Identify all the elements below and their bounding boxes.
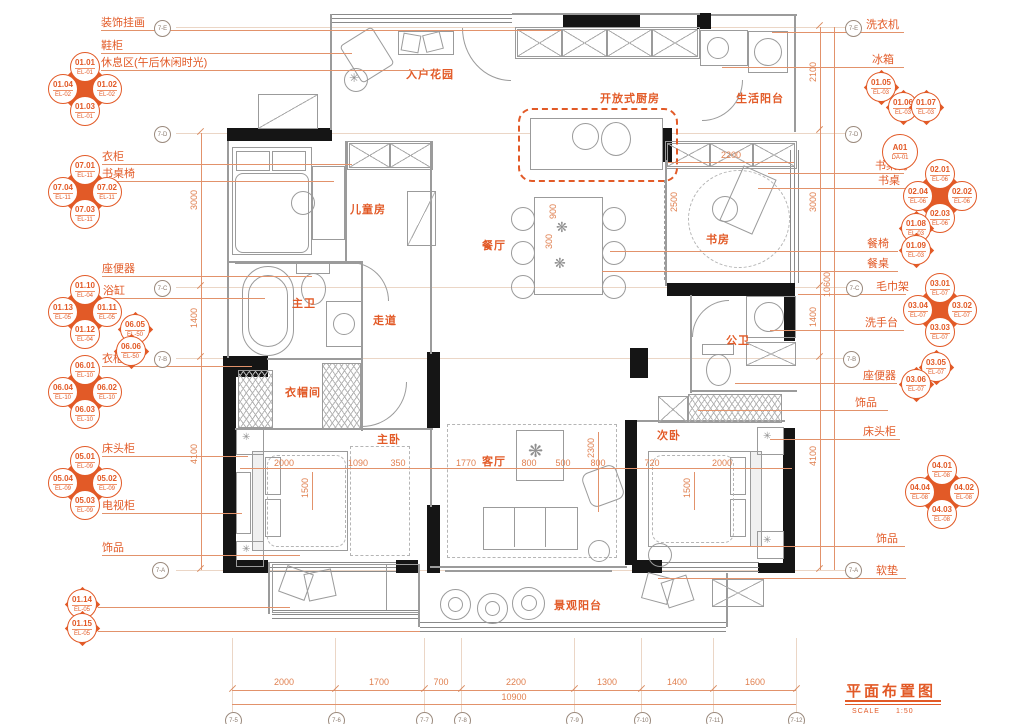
room-label-study: 书房 (706, 234, 730, 246)
annotation-towel-rack: 毛巾架 (876, 281, 909, 293)
wall-segment (625, 420, 637, 565)
annotation-nightstand-second: 床头柜 (863, 426, 896, 438)
grid-bubble: 7-12 (788, 712, 805, 724)
dining-chair (511, 241, 535, 265)
dim-dining-gap: 300 (545, 234, 554, 249)
grid-bubble: 7-D (154, 126, 171, 143)
marker-cluster-03: 03.01EL-07 03.04EL-07 03.02EL-07 03.03EL… (906, 276, 974, 344)
wardrobe-second (688, 394, 782, 423)
marker-code: 01.03 (75, 103, 95, 113)
marker-cluster-05: 05.01EL-09 05.04EL-09 05.02EL-09 05.03EL… (51, 449, 119, 517)
grid-bubble: 7-E (845, 20, 862, 37)
wall-segment (563, 13, 640, 27)
dim-bottom-6: 1600 (723, 678, 787, 687)
annotation-washbasin: 洗手台 (865, 317, 898, 329)
marker-a01: A01 DA-01 (882, 134, 918, 170)
room-label-guest-bath: 公卫 (726, 335, 750, 347)
grid-bubble: 7-9 (566, 712, 583, 724)
sofa (483, 507, 578, 550)
drawing-title: 平面布置图 (846, 680, 936, 701)
annotation-desk-study: 书桌 (878, 175, 900, 187)
annotation-washer: 洗衣机 (866, 19, 899, 31)
study-chair (712, 196, 738, 222)
grid-bubble: 7-C (154, 280, 171, 297)
wall-segment (783, 428, 795, 564)
door-arc (462, 28, 511, 81)
dim-right-1: 3000 (809, 192, 818, 212)
dim-bottom-4: 1300 (575, 678, 639, 687)
annotation-toilet-guest: 座便器 (863, 370, 896, 382)
dining-chair (602, 241, 626, 265)
dim-living-2: 500 (549, 459, 577, 468)
marker-sub: EL-01 (77, 70, 93, 76)
grid-bubble: 7-D (845, 126, 862, 143)
annotation-dining-chair: 餐椅 (867, 238, 889, 250)
dim-bottom-0: 2000 (252, 678, 316, 687)
lamp-icon: ✳ (242, 433, 250, 443)
door-arc (362, 382, 407, 427)
window-entry (330, 14, 512, 23)
shower-guest (746, 342, 796, 366)
dim-master-h: 1500 (301, 478, 310, 498)
annotation-cushion: 软垫 (876, 565, 898, 577)
wall-segment (227, 128, 332, 141)
dim-dining-w: 900 (549, 204, 558, 219)
grid-bubble: 7-A (152, 562, 169, 579)
dim-second-1: 2000 (706, 459, 738, 468)
grid-bubble: 7-B (843, 351, 860, 368)
dim-master-0: 2000 (268, 459, 300, 468)
kids-desk (312, 166, 345, 240)
elevator-shaft (258, 94, 318, 129)
wall-segment (758, 563, 795, 573)
grid-bubble: 7-5 (225, 712, 242, 724)
dim-left-1: 1400 (190, 308, 199, 328)
room-label-corridor: 走道 (373, 315, 397, 327)
room-label-second-bedroom: 次卧 (657, 430, 681, 442)
annotation-dining-table: 餐桌 (867, 258, 889, 270)
marker-code: 01.01 (75, 59, 95, 69)
marker-code: A01 (893, 144, 908, 154)
dim-second-0: 720 (638, 459, 666, 468)
dim-study-depth: 2500 (670, 192, 679, 212)
grid-bubble: 7-6 (328, 712, 345, 724)
dim-bottom-2: 700 (417, 678, 465, 687)
annotation-decor-guest: 饰品 (855, 397, 877, 409)
marker-single-0109: 01.09EL-03 (896, 230, 936, 270)
grid-bubble: 7-B (154, 351, 171, 368)
centerpiece-icon: ❋ (556, 220, 568, 234)
window-study (790, 150, 799, 283)
wall-segment (223, 377, 236, 573)
dim-bottom-1: 1700 (347, 678, 411, 687)
marker-single-0606: 06.06EL-50 (111, 331, 151, 371)
dim-living-1: 800 (515, 459, 543, 468)
lamp-icon: ✳ (763, 432, 771, 442)
grid-bubble: 7-10 (634, 712, 651, 724)
folding-door (664, 180, 668, 280)
tv-cabinet (236, 472, 251, 534)
dim-right-3: 4100 (809, 446, 818, 466)
marker-cluster-07: 07.01EL-11 07.04EL-11 07.02EL-11 07.03EL… (51, 158, 119, 226)
marker-sub: EL-01 (77, 114, 93, 120)
marker-sub: EL-02 (55, 92, 71, 98)
room-label-service-balcony: 生活阳台 (736, 93, 784, 105)
lamp-icon: ✳ (242, 545, 250, 555)
room-label-dining: 餐厅 (482, 240, 506, 252)
kids-chair (291, 191, 315, 215)
room-label-master-bath: 主卫 (292, 298, 316, 310)
annotation-shoe-cabinet: 鞋柜 (101, 40, 123, 52)
marker-cluster-01: 01.01EL-01 01.04EL-02 01.02EL-02 01.03EL… (51, 55, 119, 123)
dim-second-h: 1500 (683, 478, 692, 498)
grid-bubble: 7-C (846, 280, 863, 297)
room-label-view-balcony: 景观阳台 (554, 600, 602, 612)
dim-living-h: 2300 (587, 438, 596, 458)
room-label-cloakroom: 衣帽间 (285, 387, 321, 399)
dim-left-2: 4100 (190, 444, 199, 464)
scale-label: SCALE (852, 708, 880, 715)
dim-bottom-3: 2200 (484, 678, 548, 687)
grid-bubble: 7-7 (416, 712, 433, 724)
kitchen-island-highlight (518, 108, 678, 182)
scale-value: 1:50 (896, 708, 914, 715)
dim-living-0: 1770 (450, 459, 482, 468)
marker-code: 01.04 (53, 81, 73, 91)
dim-right-0: 2100 (809, 62, 818, 82)
dim-master-2: 350 (386, 459, 410, 468)
marker-sub: DA-01 (891, 155, 908, 161)
marker-cluster-06: 06.01EL-10 06.04EL-10 06.02EL-10 06.03EL… (51, 358, 119, 426)
window-second-bedroom (662, 562, 759, 572)
dim-bottom-5: 1400 (645, 678, 709, 687)
dining-chair (511, 275, 535, 299)
dim-master-1: 1090 (342, 459, 374, 468)
marker-code: 01.02 (97, 81, 117, 91)
annotation-decor-second: 饰品 (876, 533, 898, 545)
wall-segment (427, 505, 440, 573)
centerpiece-icon: ❋ (554, 256, 566, 270)
marker-cluster-04: 04.01EL-08 04.04EL-08 04.02EL-08 04.03EL… (908, 458, 976, 526)
second-chair (648, 543, 672, 567)
marker-single-0115: 01.15EL-05 (62, 608, 102, 648)
grid-bubble: 7-E (154, 20, 171, 37)
dining-chair (511, 207, 535, 231)
annotation-decor-master: 饰品 (102, 542, 124, 554)
lamp-icon: ✳ (763, 536, 771, 546)
grid-bubble: 7-11 (706, 712, 723, 724)
room-label-kids-room: 儿童房 (350, 204, 386, 216)
marker-cluster-01b: 01.10EL-04 01.13EL-05 01.11EL-05 01.12EL… (51, 278, 119, 346)
dining-chair (602, 207, 626, 231)
floor-plan-sheet: ✳ ❋ (0, 0, 1024, 724)
wall-segment (667, 283, 795, 296)
annotation-decor-painting: 装饰挂画 (101, 17, 145, 29)
annotation-fridge: 冰箱 (872, 54, 894, 66)
side-table (588, 540, 610, 562)
room-label-open-kitchen: 开放式厨房 (600, 93, 660, 105)
dim-left-0: 3000 (190, 190, 199, 210)
dim-bottom-total: 10900 (482, 693, 546, 702)
marker-single-0107: 01.07EL-03 (906, 87, 946, 127)
room-label-master-bedroom: 主卧 (377, 434, 401, 446)
dim-balcony-width: 2200 (712, 151, 750, 160)
marker-single-0306: 03.06EL-07 (896, 364, 936, 404)
annotation-toilet-master: 座便器 (102, 263, 135, 275)
room-label-living: 客厅 (482, 456, 506, 468)
grid-bubble: 7-A (845, 562, 862, 579)
plant-icon: ✳ (349, 72, 359, 84)
wall-segment (427, 352, 440, 428)
door-arc (350, 262, 389, 301)
dim-right-total: 10600 (823, 272, 832, 297)
window-balcony (420, 622, 726, 632)
wall-segment (630, 348, 648, 378)
wardrobe-left (238, 370, 273, 428)
marker-sub: EL-02 (99, 92, 115, 98)
dining-chair (602, 275, 626, 299)
door-arc (692, 300, 729, 337)
wardrobe-right (322, 363, 361, 429)
dim-right-2: 1400 (809, 307, 818, 327)
grid-bubble: 7-8 (454, 712, 471, 724)
duct-shaft (407, 191, 436, 246)
